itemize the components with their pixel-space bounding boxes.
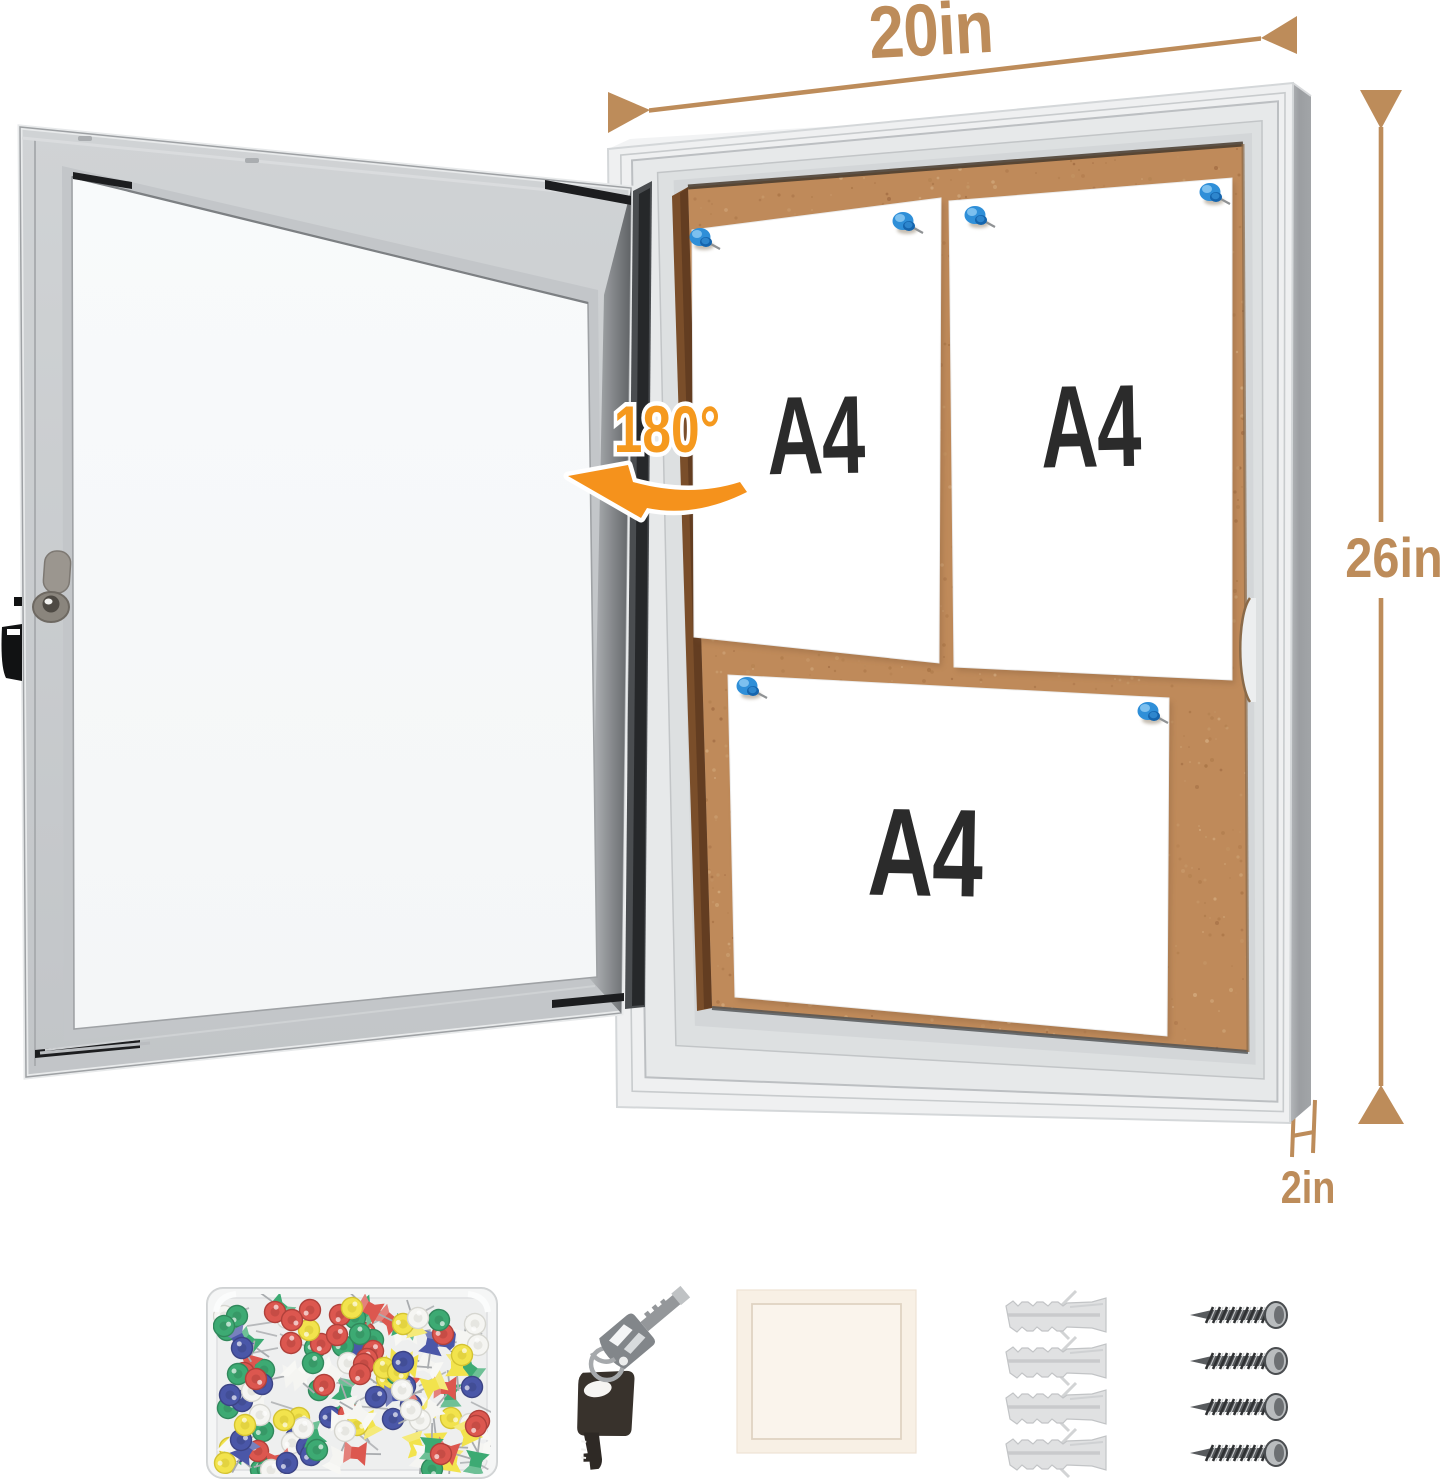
svg-text:A4: A4 — [766, 373, 866, 499]
svg-text:A4: A4 — [867, 783, 985, 924]
svg-text:2in: 2in — [1281, 1162, 1336, 1213]
svg-text:26in: 26in — [1345, 527, 1442, 590]
svg-text:180°: 180° — [614, 392, 720, 467]
svg-text:20in: 20in — [867, 0, 995, 74]
svg-text:A4: A4 — [1040, 361, 1143, 494]
